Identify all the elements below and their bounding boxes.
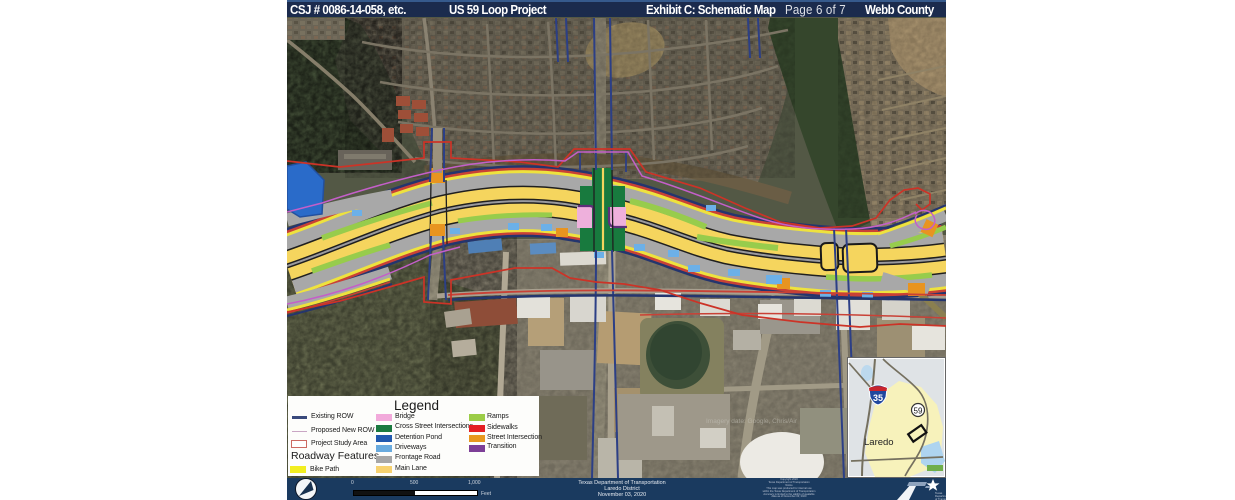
svg-text:Laredo: Laredo: [864, 437, 894, 448]
svg-text:35: 35: [873, 393, 883, 403]
svg-text:59: 59: [914, 407, 923, 416]
svg-text:Imagery date: Google, Chris/Ai: Imagery date: Google, Chris/Air: [706, 418, 798, 425]
